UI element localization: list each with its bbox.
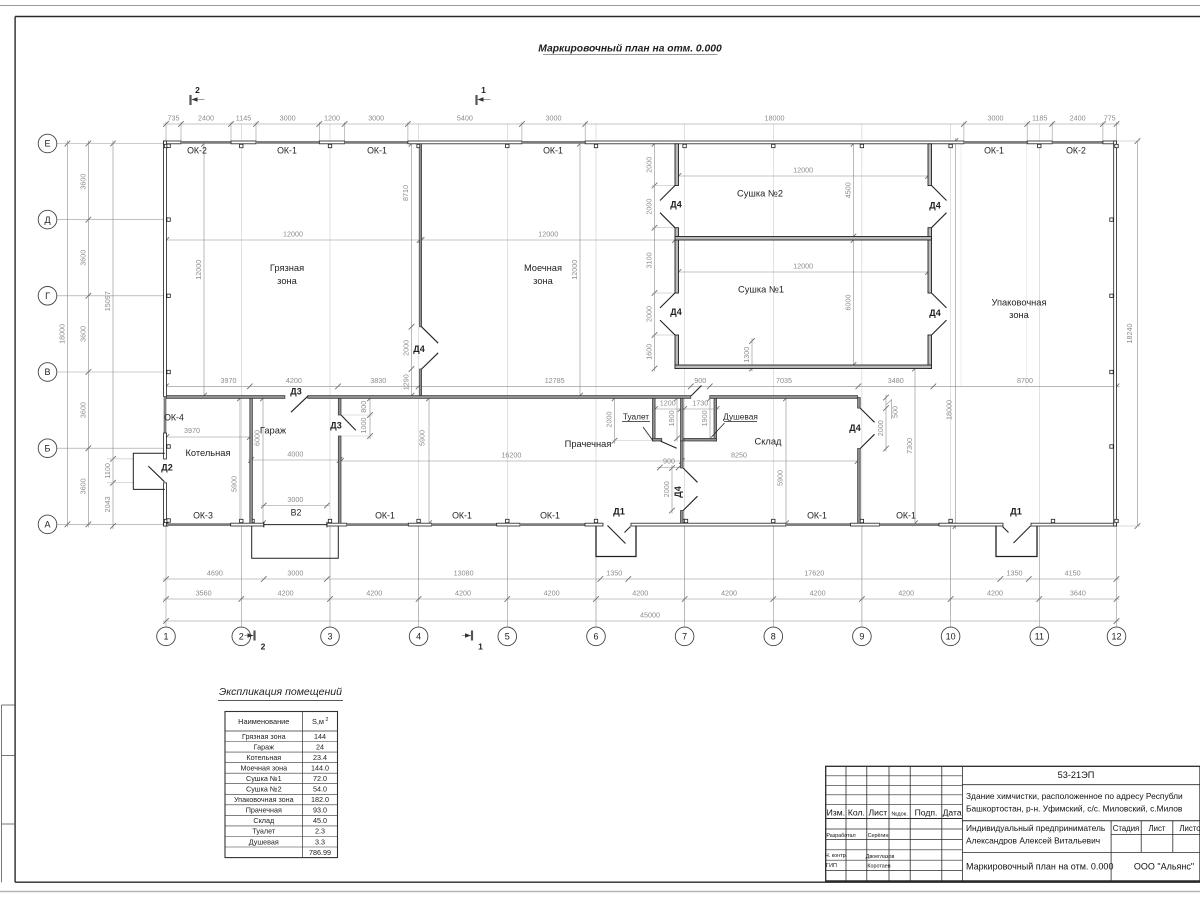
svg-text:4200: 4200 [987, 589, 1003, 598]
svg-text:8250: 8250 [731, 451, 747, 460]
svg-text:23.4: 23.4 [313, 753, 327, 762]
svg-text:Гараж: Гараж [260, 426, 287, 436]
svg-text:1350: 1350 [606, 569, 622, 578]
svg-text:4500: 4500 [844, 182, 853, 198]
svg-text:12000: 12000 [194, 260, 203, 280]
svg-text:Грязная зона: Грязная зона [242, 732, 286, 741]
svg-text:900: 900 [694, 376, 706, 385]
svg-text:3000: 3000 [368, 114, 384, 123]
svg-text:1185: 1185 [1032, 114, 1047, 123]
svg-text:1900: 1900 [700, 410, 709, 426]
svg-text:2000: 2000 [876, 420, 885, 436]
svg-text:12000: 12000 [283, 230, 303, 239]
svg-text:Подп.: Подп. [915, 808, 938, 818]
svg-text:Душевая: Душевая [249, 837, 279, 846]
svg-text:зона: зона [1009, 310, 1029, 320]
svg-text:Листо: Листо [1179, 824, 1200, 833]
svg-text:18000: 18000 [57, 324, 66, 344]
svg-text:Склад: Склад [755, 437, 782, 447]
svg-text:Индивидуальный предприниматель: Индивидуальный предприниматель [966, 823, 1106, 833]
svg-text:3480: 3480 [888, 376, 904, 385]
svg-text:Е: Е [44, 139, 50, 149]
svg-text:Д2: Д2 [161, 463, 172, 473]
svg-text:1: 1 [163, 632, 168, 642]
svg-text:2000: 2000 [605, 412, 614, 428]
svg-text:ОК-1: ОК-1 [452, 511, 472, 521]
svg-text:Лист: Лист [869, 808, 888, 818]
svg-text:3600: 3600 [78, 174, 87, 190]
svg-text:Стадия: Стадия [1113, 824, 1140, 833]
svg-text:1290: 1290 [402, 374, 411, 390]
svg-text:7300: 7300 [905, 438, 914, 454]
svg-text:2000: 2000 [402, 340, 411, 356]
svg-text:9: 9 [859, 632, 864, 642]
svg-text:Котельная: Котельная [246, 753, 281, 762]
svg-text:45000: 45000 [640, 611, 660, 620]
svg-text:2400: 2400 [198, 114, 214, 123]
svg-text:Д4: Д4 [849, 423, 860, 433]
svg-text:ОК-2: ОК-2 [1066, 146, 1086, 156]
svg-text:8710: 8710 [401, 185, 410, 201]
svg-text:5: 5 [505, 632, 510, 642]
svg-text:1100: 1100 [103, 463, 112, 478]
svg-text:1350: 1350 [1007, 569, 1023, 578]
svg-text:зона: зона [533, 276, 553, 286]
svg-text:ОК-2: ОК-2 [187, 146, 207, 156]
svg-text:Серёгин: Серёгин [868, 833, 889, 839]
svg-text:4150: 4150 [1065, 569, 1081, 578]
svg-text:18000: 18000 [765, 114, 785, 123]
svg-text:ОК-1: ОК-1 [367, 146, 387, 156]
svg-text:2: 2 [326, 717, 329, 723]
svg-text:93.0: 93.0 [313, 806, 327, 815]
svg-text:2: 2 [239, 632, 244, 642]
svg-text:Д4: Д4 [929, 308, 940, 318]
svg-text:3000: 3000 [280, 114, 296, 123]
svg-text:1600: 1600 [645, 344, 654, 360]
svg-text:2000: 2000 [645, 306, 654, 322]
svg-text:ОК-1: ОК-1 [896, 511, 916, 521]
svg-text:Н. контр.: Н. контр. [825, 853, 847, 859]
svg-text:2000: 2000 [662, 481, 671, 497]
svg-text:Изм.: Изм. [827, 808, 845, 818]
svg-text:Г: Г [45, 291, 50, 301]
svg-text:4200: 4200 [898, 589, 914, 598]
svg-text:ОК-3: ОК-3 [193, 511, 213, 521]
svg-text:735: 735 [168, 114, 180, 123]
svg-text:1: 1 [481, 85, 486, 95]
svg-text:3.3: 3.3 [315, 837, 325, 846]
svg-text:3830: 3830 [370, 376, 386, 385]
svg-text:10: 10 [946, 632, 956, 642]
svg-text:4200: 4200 [366, 589, 382, 598]
svg-text:Д4: Д4 [670, 200, 681, 210]
svg-text:7035: 7035 [776, 376, 792, 385]
svg-text:3000: 3000 [988, 114, 1004, 123]
svg-text:4000: 4000 [287, 450, 303, 459]
svg-text:4200: 4200 [810, 589, 826, 598]
svg-text:Д4: Д4 [670, 307, 681, 317]
svg-text:775: 775 [1104, 114, 1116, 123]
svg-text:1900: 1900 [667, 410, 676, 426]
svg-text:2: 2 [195, 85, 200, 95]
svg-text:8700: 8700 [1017, 376, 1033, 385]
svg-text:зона: зона [277, 276, 297, 286]
svg-text:Грязная: Грязная [270, 263, 304, 273]
svg-text:Здание химчистки, расположенн: Здание химчистки, расположенное по адрес… [966, 791, 1183, 801]
svg-text:2000: 2000 [645, 199, 654, 215]
svg-text:5900: 5900 [230, 476, 239, 492]
svg-text:Сушка №1: Сушка №1 [738, 285, 784, 295]
svg-text:А: А [44, 520, 50, 530]
svg-text:ОК-1: ОК-1 [375, 511, 395, 521]
svg-text:Сушка №2: Сушка №2 [737, 189, 783, 199]
svg-text:№док.: №док. [891, 812, 908, 818]
svg-text:7: 7 [682, 632, 687, 642]
svg-text:3000: 3000 [287, 495, 303, 504]
svg-text:ОК-4: ОК-4 [164, 413, 184, 423]
svg-text:S,м: S,м [312, 717, 324, 726]
svg-text:ОК-1: ОК-1 [543, 146, 563, 156]
svg-text:3000: 3000 [546, 114, 562, 123]
svg-text:Д4: Д4 [413, 344, 424, 354]
svg-text:144.0: 144.0 [311, 763, 329, 772]
svg-text:5400: 5400 [457, 114, 473, 123]
svg-text:2400: 2400 [1070, 114, 1086, 123]
svg-text:Склад: Склад [253, 816, 275, 825]
svg-text:2043: 2043 [103, 496, 112, 512]
svg-text:2: 2 [261, 642, 266, 652]
svg-text:3560: 3560 [196, 589, 212, 598]
svg-text:800: 800 [359, 401, 368, 413]
svg-text:6000: 6000 [844, 295, 853, 311]
svg-text:Д1: Д1 [1010, 507, 1022, 517]
svg-text:4200: 4200 [721, 589, 737, 598]
svg-text:Прачечная: Прачечная [565, 439, 612, 449]
svg-text:Д1: Д1 [613, 507, 625, 517]
svg-text:ОК-1: ОК-1 [984, 146, 1004, 156]
svg-text:18240: 18240 [1125, 324, 1134, 344]
svg-text:Упаковочная зона: Упаковочная зона [234, 795, 294, 804]
svg-text:Прачечная: Прачечная [246, 806, 282, 815]
svg-text:15097: 15097 [103, 291, 112, 311]
svg-text:12000: 12000 [538, 230, 558, 239]
svg-text:4200: 4200 [632, 589, 648, 598]
svg-text:3970: 3970 [184, 426, 200, 435]
svg-text:11: 11 [1035, 632, 1044, 642]
svg-text:4200: 4200 [455, 589, 471, 598]
svg-text:17620: 17620 [804, 569, 824, 578]
svg-text:Д4: Д4 [673, 486, 683, 497]
svg-text:Сушка №2: Сушка №2 [246, 785, 282, 794]
svg-text:12: 12 [1111, 632, 1121, 642]
svg-text:2.3: 2.3 [315, 827, 325, 836]
svg-text:1000: 1000 [359, 418, 368, 434]
svg-text:5900: 5900 [776, 470, 785, 486]
svg-text:3: 3 [327, 632, 332, 642]
svg-text:4200: 4200 [286, 376, 302, 385]
svg-text:Маркировочный план на отм. 0.0: Маркировочный план на отм. 0.000 [966, 862, 1113, 872]
svg-text:3100: 3100 [645, 252, 654, 268]
svg-text:3000: 3000 [287, 569, 303, 578]
svg-text:1730: 1730 [692, 399, 708, 408]
svg-text:3600: 3600 [78, 250, 87, 266]
svg-text:1200: 1200 [660, 399, 676, 408]
svg-text:Экспликация помещений: Экспликация помещений [219, 686, 342, 698]
svg-text:4200: 4200 [544, 589, 560, 598]
svg-text:Д3: Д3 [290, 387, 301, 397]
svg-text:Б: Б [45, 443, 51, 453]
svg-text:Туалет: Туалет [252, 827, 275, 836]
svg-text:Башкортостан, р-н. Уфимский, с: Башкортостан, р-н. Уфимский, с/с. Миловс… [966, 804, 1183, 814]
svg-text:24: 24 [316, 742, 324, 751]
svg-text:5900: 5900 [418, 430, 427, 446]
svg-text:3970: 3970 [221, 376, 237, 385]
svg-text:3600: 3600 [78, 326, 87, 342]
svg-text:В2: В2 [291, 508, 302, 518]
svg-text:Туалет: Туалет [623, 412, 649, 422]
svg-text:Лист: Лист [1149, 824, 1166, 833]
svg-text:144: 144 [314, 732, 326, 741]
svg-text:Душевая: Душевая [723, 412, 758, 422]
svg-text:900: 900 [663, 457, 675, 466]
svg-text:500: 500 [891, 406, 900, 418]
svg-text:ОК-1: ОК-1 [277, 146, 297, 156]
svg-text:16200: 16200 [501, 451, 521, 460]
svg-text:54.0: 54.0 [313, 785, 327, 794]
svg-text:ГИП: ГИП [826, 863, 837, 869]
svg-text:53-21ЭП: 53-21ЭП [1058, 770, 1095, 780]
svg-text:ОК-1: ОК-1 [807, 511, 827, 521]
svg-text:12000: 12000 [793, 262, 813, 271]
svg-text:12000: 12000 [793, 166, 813, 175]
svg-text:4: 4 [416, 632, 421, 642]
svg-text:13080: 13080 [454, 569, 474, 578]
svg-text:1200: 1200 [324, 114, 340, 123]
svg-text:3640: 3640 [1070, 589, 1086, 598]
svg-text:1145: 1145 [236, 114, 251, 123]
svg-text:3600: 3600 [78, 478, 87, 494]
svg-text:45.0: 45.0 [313, 816, 327, 825]
svg-text:Моечная: Моечная [524, 263, 562, 273]
svg-text:ОК-1: ОК-1 [540, 511, 560, 521]
svg-text:Двоеглазов: Двоеглазов [866, 854, 895, 860]
svg-text:12000: 12000 [570, 260, 579, 280]
svg-text:Упаковочная: Упаковочная [991, 298, 1046, 308]
svg-text:Сушка №1: Сушка №1 [246, 774, 282, 783]
svg-text:Александров Алексей Витальевич: Александров Алексей Витальевич [966, 836, 1100, 846]
svg-text:Д4: Д4 [929, 201, 940, 211]
svg-text:Кол.: Кол. [848, 808, 865, 818]
svg-text:1: 1 [478, 642, 483, 652]
svg-text:Коротаев: Коротаев [867, 863, 890, 869]
svg-text:3600: 3600 [78, 402, 87, 418]
svg-text:182.0: 182.0 [311, 795, 329, 804]
svg-text:72.0: 72.0 [313, 774, 327, 783]
svg-text:Д: Д [44, 215, 50, 225]
svg-text:В: В [44, 367, 50, 377]
svg-text:4690: 4690 [207, 569, 223, 578]
svg-text:Моечная зона: Моечная зона [240, 763, 287, 772]
svg-text:ООО "Альянс": ООО "Альянс" [1134, 862, 1194, 872]
svg-text:18000: 18000 [945, 400, 954, 420]
svg-text:12785: 12785 [545, 376, 565, 385]
svg-text:Маркировочный план на отм. 0.0: Маркировочный план на отм. 0.000 [538, 44, 722, 55]
svg-text:8: 8 [771, 632, 776, 642]
svg-text:2000: 2000 [645, 157, 654, 173]
svg-text:786.99: 786.99 [309, 848, 331, 857]
svg-text:6: 6 [593, 632, 598, 642]
svg-text:Котельная: Котельная [185, 448, 230, 458]
svg-text:1300: 1300 [742, 347, 751, 363]
svg-text:Дата: Дата [943, 808, 962, 818]
svg-text:Наименование: Наименование [238, 717, 289, 726]
svg-text:Д3: Д3 [330, 421, 341, 431]
svg-text:4200: 4200 [278, 589, 294, 598]
svg-text:Разработал: Разработал [826, 833, 855, 839]
svg-text:Гараж: Гараж [254, 742, 274, 751]
